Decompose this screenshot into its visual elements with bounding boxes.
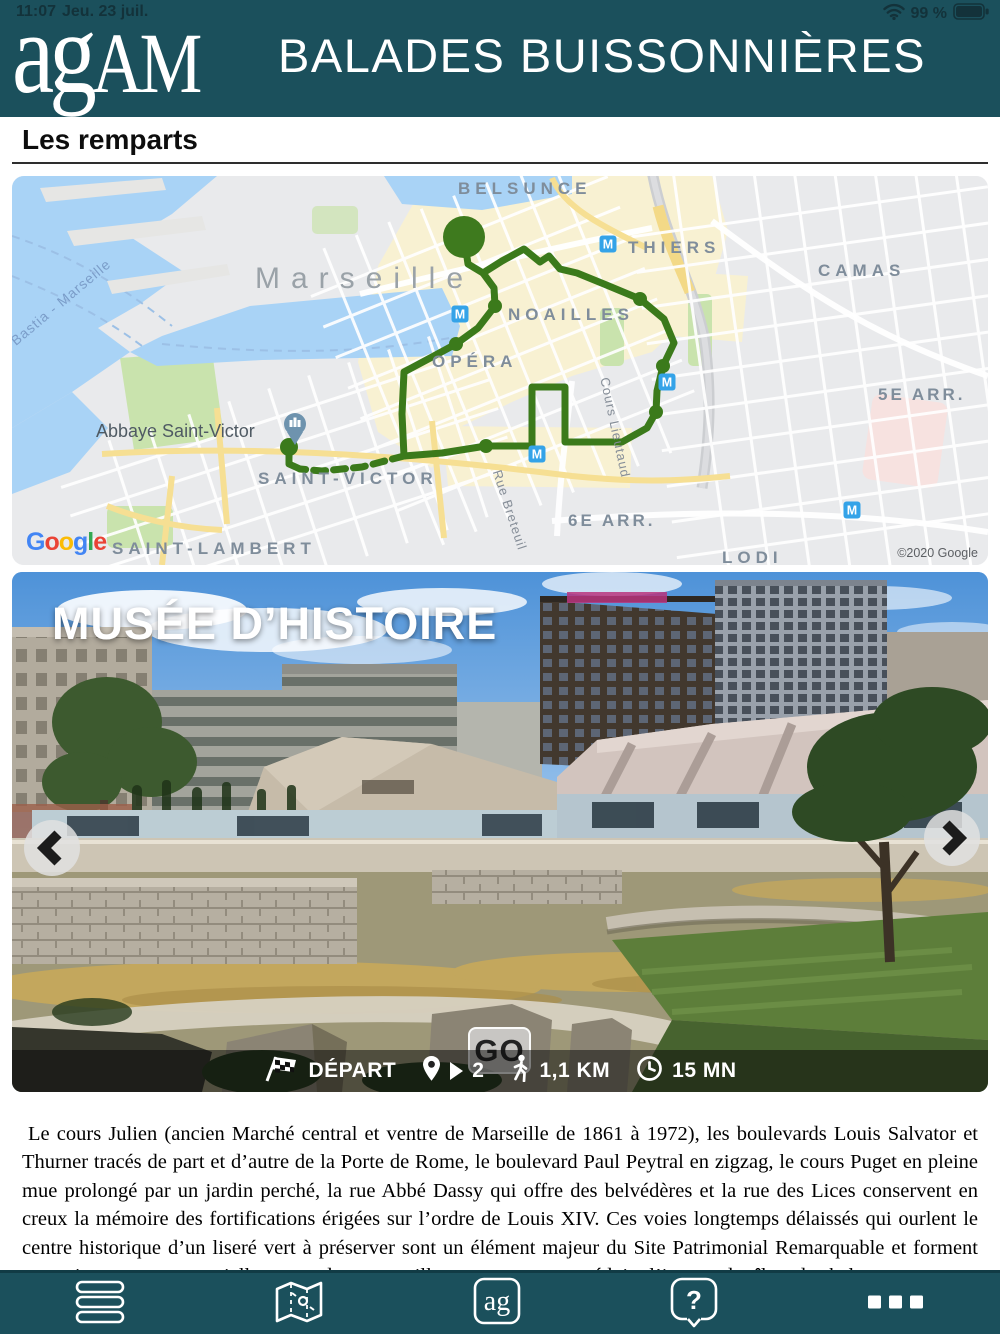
route-waypoint [656, 359, 670, 373]
route-start-marker [443, 216, 485, 258]
play-icon [450, 1062, 463, 1080]
route-map[interactable]: M M M M M Marseille BELSUNCE THIERS CAMA… [12, 176, 988, 565]
svg-text:?: ? [686, 1285, 702, 1315]
more-dots-icon [866, 1294, 926, 1313]
carousel-prev-button[interactable] [24, 820, 80, 876]
distance-value: 1,1 KM [539, 1059, 610, 1083]
agam-logo: agAM [12, 0, 199, 121]
toolbar-list-button[interactable] [74, 1276, 126, 1332]
clock-icon [636, 1055, 663, 1088]
chevron-right-icon [924, 854, 980, 869]
google-logo[interactable]: Google [26, 528, 106, 557]
toolbar-help-button[interactable]: ? [669, 1276, 719, 1332]
help-bubble-icon: ? [669, 1276, 719, 1331]
route-description: Le cours Julien (ancien Marché central e… [22, 1120, 978, 1292]
svg-text:ag: ag [484, 1286, 510, 1317]
chevron-left-icon [24, 864, 80, 879]
bottom-toolbar: ag ? [0, 1270, 1000, 1334]
metro-badge-icon: M [600, 236, 617, 253]
photo-carousel: CENTRE BOURSE [12, 572, 988, 1092]
distance-item: 1,1 KM [510, 1054, 610, 1088]
status-right-cluster: 99 % [883, 3, 990, 25]
duration-item: 15 MN [636, 1055, 736, 1088]
agam-logo-am: AM [92, 15, 199, 111]
carousel-next-button[interactable] [924, 810, 980, 866]
waypoint-count: 2 [472, 1059, 484, 1083]
route-waypoint [488, 299, 502, 313]
duration-value: 15 MN [672, 1059, 736, 1083]
route-waypoint [479, 439, 493, 453]
route-waypoint [649, 405, 663, 419]
metro-badge-icon: M [452, 306, 469, 323]
svg-text:M: M [662, 376, 672, 390]
toolbar-agam-button[interactable]: ag [472, 1276, 522, 1332]
checkered-flag-icon [263, 1054, 299, 1088]
toolbar-map-button[interactable] [273, 1276, 325, 1332]
photo-title: MUSÉE D’HISTOIRE [52, 598, 497, 650]
photo-musee-histoire: CENTRE BOURSE [12, 572, 988, 1092]
route-waypoint [633, 292, 647, 306]
app-screen: 11:07 Jeu. 23 juil. 99 % agAM BALADES BU… [0, 0, 1000, 1334]
route-waypoint [449, 337, 463, 351]
wifi-icon [883, 3, 905, 25]
map-canvas: M M M M M [12, 176, 988, 565]
app-title: BALADES BUISSONNIÈRES [278, 28, 926, 83]
battery-percent: 99 % [911, 5, 947, 23]
svg-text:M: M [603, 238, 613, 252]
map-icon [273, 1279, 325, 1328]
list-icon [74, 1280, 126, 1327]
waypoints-item: 2 [422, 1055, 484, 1088]
svg-text:M: M [455, 308, 465, 322]
battery-icon [953, 3, 990, 25]
route-info-bar: DÉPART 2 1,1 KM [12, 1050, 988, 1092]
metro-badge-icon: M [529, 446, 546, 463]
agam-badge-icon: ag [472, 1276, 522, 1331]
svg-text:M: M [847, 504, 857, 518]
metro-badge-icon: M [844, 502, 861, 519]
page-title: Les remparts [22, 124, 198, 156]
walking-person-icon [510, 1054, 530, 1088]
depart-label: DÉPART [308, 1059, 396, 1083]
title-divider [12, 162, 988, 164]
toolbar-more-button[interactable] [866, 1276, 926, 1332]
metro-badge-icon: M [659, 374, 676, 391]
header: 11:07 Jeu. 23 juil. 99 % agAM BALADES BU… [0, 0, 1000, 117]
agam-logo-ag: ag [12, 0, 92, 118]
map-pin-icon [422, 1055, 441, 1088]
depart-item: DÉPART [263, 1054, 396, 1088]
svg-text:M: M [532, 448, 542, 462]
